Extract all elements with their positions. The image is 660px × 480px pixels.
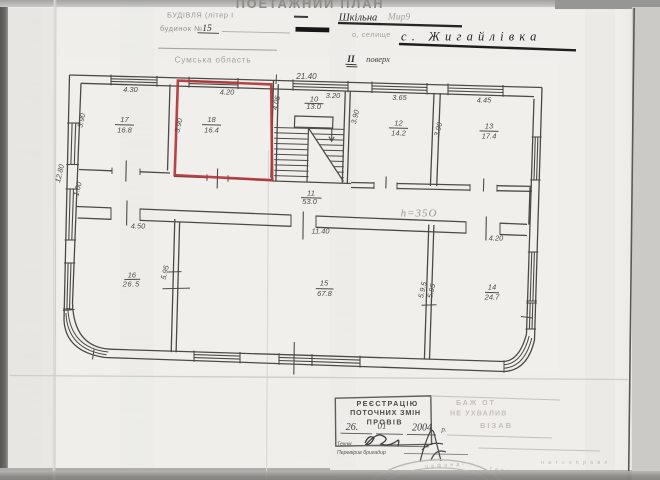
svg-text:01: 01 xyxy=(378,421,387,431)
svg-text:24.7: 24.7 xyxy=(484,293,501,302)
svg-text:26.5: 26.5 xyxy=(122,280,140,289)
svg-text:16.8: 16.8 xyxy=(117,125,133,134)
svg-text:Перевірив бригадир: Перевірив бригадир xyxy=(337,450,386,456)
svg-text:2004: 2004 xyxy=(412,423,432,434)
svg-text:о, селище: о, селище xyxy=(352,30,391,39)
svg-text:будинок №: будинок № xyxy=(160,24,203,33)
svg-text:21.40: 21.40 xyxy=(295,72,317,81)
svg-text:16.4: 16.4 xyxy=(204,125,219,134)
svg-text:Шкільна: Шкільна xyxy=(338,13,378,24)
svg-text:Мир9: Мир9 xyxy=(387,13,410,23)
svg-text:17: 17 xyxy=(120,115,129,124)
svg-text:р.: р. xyxy=(440,426,447,434)
svg-text:4.30: 4.30 xyxy=(123,85,138,94)
svg-text:17.4: 17.4 xyxy=(482,132,497,141)
svg-text:с. Жигайлівка: с. Жигайлівка xyxy=(401,30,542,44)
svg-text:11.40: 11.40 xyxy=(312,227,331,236)
svg-text:ІІ: ІІ xyxy=(346,55,355,65)
svg-text:ВІЗАВ: ВІЗАВ xyxy=(480,421,513,430)
svg-text:h=35O: h=35O xyxy=(401,208,438,220)
svg-text:Технік: Технік xyxy=(337,441,352,447)
svg-text:26.: 26. xyxy=(346,422,359,433)
svg-text:13.0: 13.0 xyxy=(306,102,322,111)
svg-text:БУДІВЛЯ (літер І: БУДІВЛЯ (літер І xyxy=(167,11,234,20)
svg-text:Сумська область: Сумська область xyxy=(175,56,252,65)
svg-text:3.65: 3.65 xyxy=(392,93,407,102)
svg-text:4.20: 4.20 xyxy=(489,233,504,242)
svg-text:12: 12 xyxy=(394,119,403,128)
svg-text:13: 13 xyxy=(485,122,494,131)
svg-text:18: 18 xyxy=(207,115,216,124)
svg-text:15: 15 xyxy=(320,279,329,288)
svg-text:14: 14 xyxy=(488,282,496,291)
svg-text:БАЖ ОТ: БАЖ ОТ xyxy=(456,400,496,407)
svg-text:ПОЕТАЖНИЙ ПЛАН: ПОЕТАЖНИЙ ПЛАН xyxy=(236,0,385,11)
svg-text:14.2: 14.2 xyxy=(391,129,407,138)
svg-text:4.45: 4.45 xyxy=(477,95,492,104)
svg-text:н а т с х п р а в л: н а т с х п р а в л xyxy=(541,460,609,466)
svg-text:НЕ УХВАЛИВ: НЕ УХВАЛИВ xyxy=(450,411,508,418)
svg-text:3.20: 3.20 xyxy=(326,91,341,100)
svg-text:67.8: 67.8 xyxy=(317,289,333,298)
svg-text:53.0: 53.0 xyxy=(302,197,318,206)
svg-text:4.20: 4.20 xyxy=(220,87,235,96)
svg-text:поверх: поверх xyxy=(366,54,390,64)
svg-text:ПОТОЧНИХ ЗМІН: ПОТОЧНИХ ЗМІН xyxy=(350,408,421,417)
svg-text:16: 16 xyxy=(128,271,137,280)
svg-text:4.50: 4.50 xyxy=(131,222,146,231)
svg-text:РЕЄСТРАЦІЮ: РЕЄСТРАЦІЮ xyxy=(356,399,418,408)
